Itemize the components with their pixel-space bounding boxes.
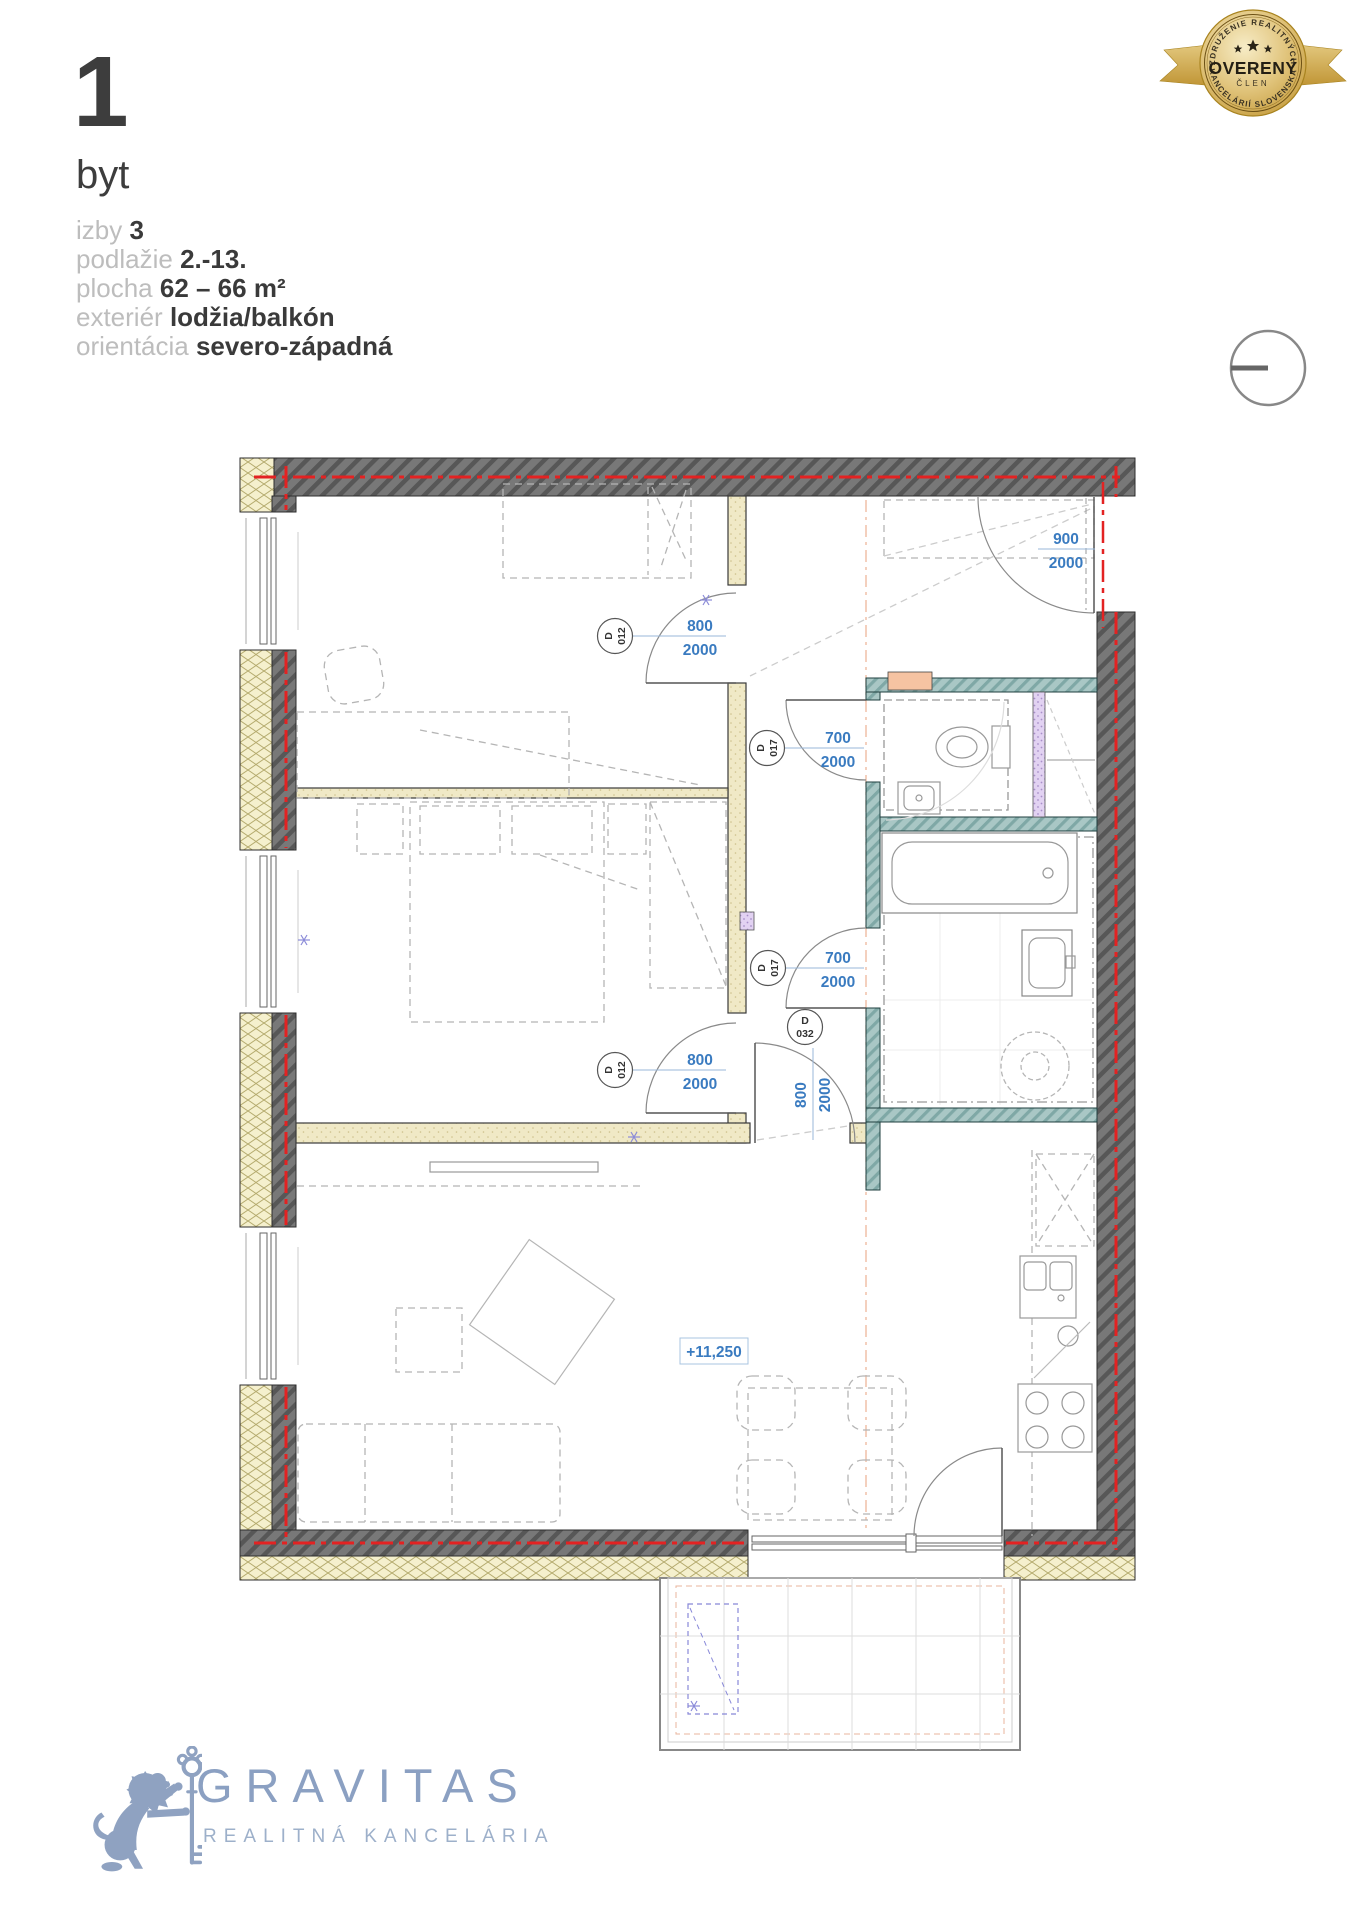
door-tag-living: D 032 — [788, 1010, 823, 1045]
dining-chair — [848, 1376, 906, 1430]
shaft-wall — [1033, 692, 1045, 817]
svg-text:012: 012 — [616, 1061, 628, 1079]
side-table — [396, 1308, 462, 1372]
door-arc-bedroom1 — [646, 593, 736, 683]
door-tags: D012 D012 D017 D017 D 032 — [598, 619, 823, 1088]
window-left-1 — [246, 518, 298, 644]
washing-machine — [1001, 1032, 1069, 1100]
brand-tagline: REALITNÁ KANCELÁRIA — [203, 1826, 555, 1848]
brand-lion-key-icon — [82, 1746, 202, 1876]
nightstand — [608, 804, 646, 854]
dining-chair — [737, 1376, 795, 1430]
coffee-table — [470, 1240, 615, 1385]
svg-text:800: 800 — [687, 618, 713, 635]
desk — [297, 712, 569, 798]
sofa — [298, 1424, 560, 1522]
svg-text:D: D — [755, 744, 767, 752]
floor-plan: D012 D012 D017 D017 D 032 800 2000 800 2… — [0, 0, 1357, 1919]
svg-text:900: 900 — [1053, 531, 1079, 548]
svg-text:700: 700 — [825, 730, 851, 747]
svg-text:D: D — [801, 1015, 809, 1027]
bed-single — [503, 484, 691, 578]
door-tag-bathroom: D017 — [751, 951, 786, 986]
svg-text:2000: 2000 — [683, 642, 717, 659]
svg-text:D: D — [603, 632, 615, 640]
level-label: +11,250 — [680, 1338, 748, 1364]
bathtub — [882, 833, 1077, 913]
door-tag-bedroom2: D012 — [598, 1053, 633, 1088]
dining-table — [748, 1388, 892, 1520]
door-arc-balcony — [914, 1448, 1002, 1536]
svg-text:D: D — [603, 1066, 615, 1074]
svg-text:800: 800 — [687, 1052, 713, 1069]
svg-text:2000: 2000 — [821, 974, 855, 991]
door-tag-bedroom1: D012 — [598, 619, 633, 654]
svg-text:017: 017 — [768, 739, 780, 757]
window-left-2 — [246, 856, 298, 1007]
nightstand — [357, 804, 403, 854]
bed-double — [410, 802, 604, 1022]
north-indicator-icon — [1231, 331, 1305, 405]
brand-name: GRAVITAS — [196, 1758, 531, 1813]
svg-text:032: 032 — [796, 1028, 814, 1040]
kitchen-fixture — [1058, 1326, 1078, 1346]
window-left-3 — [246, 1233, 298, 1379]
svg-text:017: 017 — [769, 959, 781, 977]
interior-partitions — [296, 496, 878, 1143]
svg-text:D: D — [756, 964, 768, 972]
balcony-door-frame — [916, 1536, 1002, 1550]
salmon-block — [888, 672, 932, 690]
svg-text:+11,250: +11,250 — [686, 1344, 742, 1361]
kitchen-sink — [1020, 1256, 1076, 1318]
svg-text:2000: 2000 — [1049, 555, 1083, 572]
shaft-wall-small — [740, 912, 754, 930]
svg-text:2000: 2000 — [683, 1076, 717, 1093]
toilet-icon — [936, 727, 988, 767]
svg-text:800: 800 — [793, 1082, 810, 1108]
dining-chair — [848, 1460, 906, 1514]
svg-text:012: 012 — [616, 627, 628, 645]
door-tag-wc: D017 — [750, 731, 785, 766]
dining-chair — [737, 1460, 795, 1514]
svg-text:2000: 2000 — [821, 754, 855, 771]
tv-bench — [430, 1162, 598, 1172]
balcony-window — [752, 1534, 916, 1552]
stove — [1018, 1384, 1092, 1452]
balcony — [660, 1578, 1020, 1750]
chair — [322, 644, 387, 707]
lion-tail — [93, 1813, 108, 1840]
svg-text:700: 700 — [825, 950, 851, 967]
svg-text:2000: 2000 — [817, 1078, 834, 1112]
fixtures — [430, 700, 1095, 1452]
